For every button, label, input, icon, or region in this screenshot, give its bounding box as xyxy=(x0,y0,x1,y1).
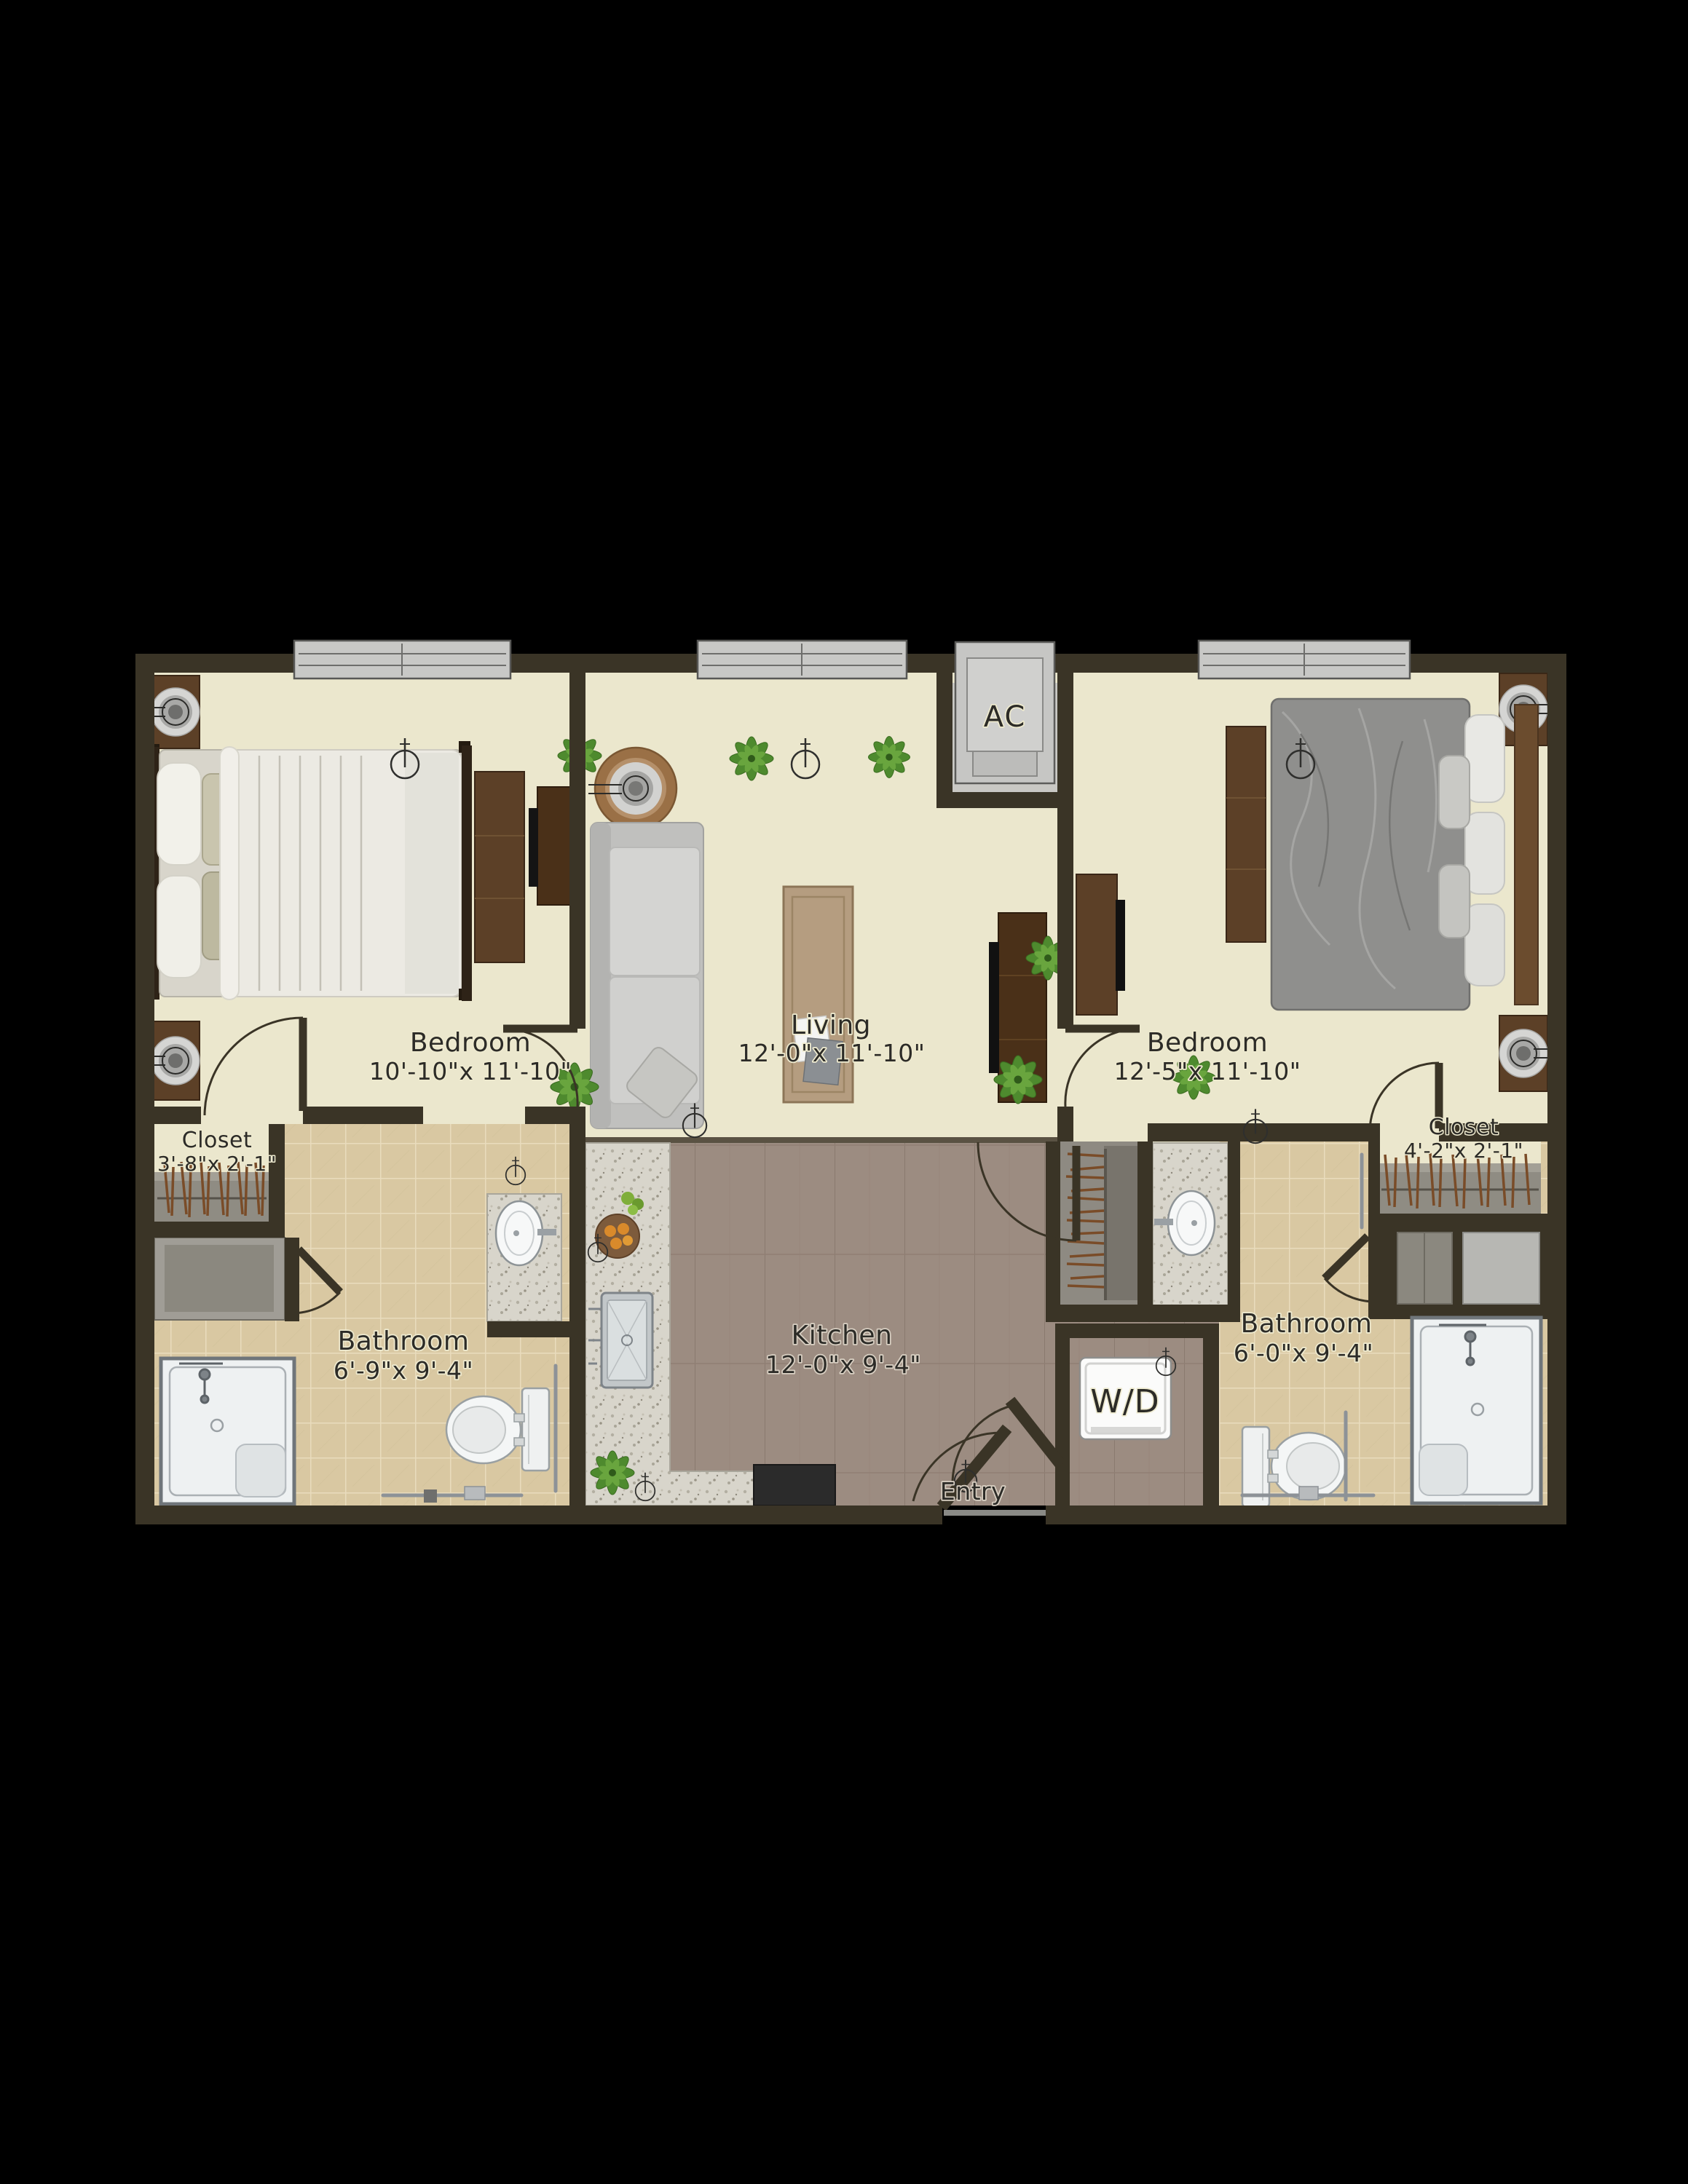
pillow xyxy=(157,763,201,865)
window-bedroom-left xyxy=(294,641,510,678)
walk-in-wardrobe xyxy=(1060,1142,1137,1305)
plant-icon xyxy=(591,1451,634,1495)
vanity-right xyxy=(1153,1143,1228,1307)
linen-nook-left xyxy=(154,1238,285,1320)
windows xyxy=(294,641,1410,678)
dresser-right xyxy=(1226,727,1266,942)
range-stove xyxy=(754,1465,835,1506)
living-kitchen-threshold xyxy=(585,1137,1057,1143)
label-bedroom-left: Bedroom xyxy=(410,1028,531,1058)
faucet-right-icon xyxy=(1154,1219,1173,1225)
shower-caddy xyxy=(1299,1487,1318,1500)
label-closet-left-dims: 3'-8"x 2'-1" xyxy=(157,1152,277,1176)
ac-unit: AC xyxy=(955,642,1054,783)
label-washer-dryer: W/D xyxy=(1090,1383,1159,1420)
label-closet-right: Closet xyxy=(1429,1115,1499,1140)
window-living xyxy=(698,641,907,678)
label-living-dims: 12'-0"x 11'-10" xyxy=(738,1039,926,1067)
label-bedroom-right-dims: 12'-5"x 11'-10" xyxy=(1114,1057,1301,1085)
plant-icon xyxy=(730,737,773,780)
tv-icon xyxy=(989,942,999,1073)
tv-icon xyxy=(1116,900,1125,991)
pillow xyxy=(1465,904,1504,986)
label-bathroom-right: Bathroom xyxy=(1241,1309,1373,1339)
label-bathroom-left-dims: 6'-9"x 9'-4" xyxy=(334,1356,473,1385)
sofa xyxy=(591,823,703,1128)
vanity-left xyxy=(487,1194,561,1321)
pillow xyxy=(1465,715,1504,802)
plant-icon xyxy=(869,737,910,778)
pillow xyxy=(157,876,201,978)
bed-left xyxy=(148,741,472,1001)
label-kitchen-dims: 12'-0"x 9'-4" xyxy=(765,1350,921,1379)
shower-seat xyxy=(1419,1444,1467,1495)
sofa-cushion xyxy=(610,847,700,976)
plant-icon xyxy=(994,1056,1042,1104)
floor-vent xyxy=(424,1489,437,1503)
label-kitchen: Kitchen xyxy=(792,1321,893,1350)
floor-plan-svg: AC Bedroom 10'-10"x 11'-10" Living 12'-0… xyxy=(135,636,1566,1524)
wall-ac-closet xyxy=(936,673,953,808)
label-closet-right-dims: 4'-2"x 2'-1" xyxy=(1404,1139,1523,1163)
accent-pillow xyxy=(1439,865,1470,938)
label-bathroom-left: Bathroom xyxy=(338,1326,470,1356)
ac-label: AC xyxy=(984,700,1027,734)
dresser-left xyxy=(475,772,524,962)
label-bedroom-right: Bedroom xyxy=(1147,1028,1268,1058)
floor-plan: AC Bedroom 10'-10"x 11'-10" Living 12'-0… xyxy=(135,636,1566,1524)
window-bedroom-right xyxy=(1199,641,1410,678)
shower-caddy xyxy=(465,1487,485,1500)
entry-threshold xyxy=(944,1510,1046,1516)
tv-icon xyxy=(529,808,538,887)
accent-pillow xyxy=(1439,756,1470,828)
shelf-block-right xyxy=(1368,1229,1547,1319)
fruit-bowl xyxy=(596,1214,639,1258)
pillow xyxy=(1465,812,1504,894)
bed-right xyxy=(1271,699,1538,1010)
wall-living-bedroom2 xyxy=(1057,673,1073,1029)
label-bedroom-left-dims: 10'-10"x 11'-10" xyxy=(369,1057,572,1085)
wall-bedroom1-living xyxy=(569,673,585,1029)
label-living: Living xyxy=(791,1010,871,1040)
faucet-left-icon xyxy=(537,1229,556,1235)
label-bathroom-right-dims: 6'-0"x 9'-4" xyxy=(1234,1339,1373,1367)
label-entry: Entry xyxy=(940,1477,1006,1506)
label-closet-left: Closet xyxy=(182,1128,253,1153)
tv-console-bedroom-right xyxy=(1076,874,1125,1015)
shower-seat xyxy=(236,1444,285,1497)
coffee-table xyxy=(784,887,853,1102)
shower-right xyxy=(1412,1318,1541,1503)
shower-left xyxy=(161,1358,294,1504)
